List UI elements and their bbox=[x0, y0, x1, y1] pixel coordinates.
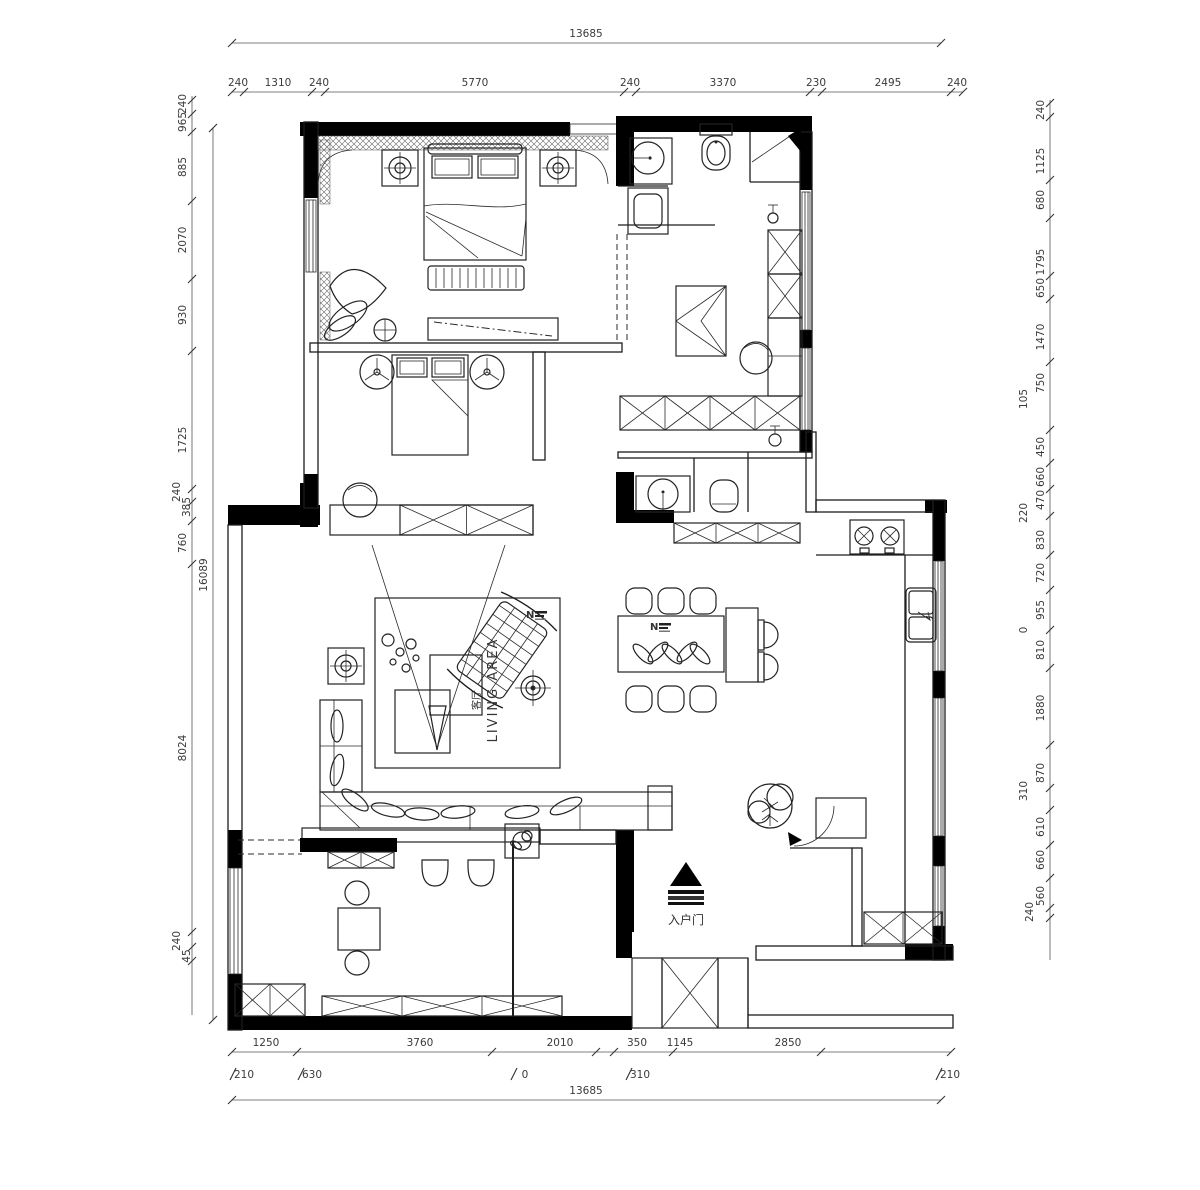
dim-label: 240 bbox=[1035, 100, 1047, 120]
dim-label: 45 bbox=[181, 949, 193, 962]
chair-icon bbox=[758, 652, 778, 682]
entry-hall: 入户门 bbox=[632, 862, 942, 1028]
dim-label: 830 bbox=[1035, 530, 1047, 550]
dining-area: N bbox=[618, 588, 778, 712]
dim-label: 1145 bbox=[667, 1037, 694, 1049]
bathroom-top bbox=[620, 124, 802, 430]
dim-label: 450 bbox=[1035, 437, 1047, 457]
toilet-icon bbox=[710, 480, 738, 512]
rug-icon bbox=[428, 266, 524, 290]
dim-label: 1250 bbox=[253, 1037, 280, 1049]
dim-label: 660 bbox=[1035, 467, 1047, 487]
window-left-upper bbox=[306, 200, 316, 272]
tea-table bbox=[338, 908, 380, 950]
chair-icon bbox=[345, 881, 369, 905]
bed-icon bbox=[424, 144, 526, 260]
stool-icon bbox=[422, 860, 448, 886]
ceiling-fan-icon bbox=[470, 355, 504, 389]
dim-label: 210 bbox=[940, 1069, 960, 1081]
dim-label: 560 bbox=[1035, 886, 1047, 906]
svg-text:N: N bbox=[526, 610, 534, 621]
kitchen-sink-icon bbox=[906, 588, 936, 642]
dim-label: 750 bbox=[1035, 373, 1047, 393]
dim-label: 1725 bbox=[177, 427, 189, 454]
elevator bbox=[632, 958, 748, 1028]
kitchen bbox=[748, 520, 936, 846]
floor-plan-svg: N N LIVIN bbox=[0, 0, 1200, 1190]
fridge-icon bbox=[816, 798, 866, 838]
dim-label: 810 bbox=[1035, 640, 1047, 660]
dim-label: 965 bbox=[177, 112, 189, 132]
dim-label: 1310 bbox=[265, 77, 292, 89]
dim-label: 310 bbox=[1018, 781, 1030, 801]
dim-label: 240 bbox=[309, 77, 329, 89]
stool-icon bbox=[468, 860, 494, 886]
dim-label: 3370 bbox=[710, 77, 737, 89]
dim-label: 870 bbox=[1035, 763, 1047, 783]
entry-door-label: 入户门 bbox=[668, 912, 704, 927]
dim-label: 610 bbox=[1035, 817, 1047, 837]
entry-door-icon bbox=[668, 862, 704, 905]
living-area-label-cn: 客厅 bbox=[470, 690, 483, 710]
dim-label: 1125 bbox=[1035, 148, 1047, 175]
dim-label: 105 bbox=[1018, 389, 1030, 409]
washing-machine-icon bbox=[628, 188, 668, 234]
chair-icon bbox=[345, 951, 369, 975]
dim-label: 240 bbox=[1024, 902, 1036, 922]
dim-label: 3760 bbox=[407, 1037, 434, 1049]
chair-icon bbox=[626, 588, 652, 614]
walls bbox=[228, 116, 953, 1030]
downlight-icon bbox=[382, 150, 418, 186]
dim-label: 5770 bbox=[462, 77, 489, 89]
dim-label: 885 bbox=[177, 157, 189, 177]
dim-label: 16089 bbox=[198, 558, 210, 591]
floor-plan-canvas: N N LIVIN bbox=[0, 0, 1200, 1190]
dim-label: 310 bbox=[630, 1069, 650, 1081]
sink-icon bbox=[630, 138, 672, 184]
downlight-icon bbox=[328, 648, 364, 684]
dim-label: 680 bbox=[1035, 190, 1047, 210]
dim-label: 210 bbox=[234, 1069, 254, 1081]
brand-logo: N bbox=[650, 622, 671, 633]
chair-icon bbox=[758, 620, 778, 650]
dim-label: 13685 bbox=[569, 28, 602, 40]
shower-icon bbox=[750, 128, 801, 182]
dim-label: 1795 bbox=[1035, 249, 1047, 276]
dim-label: 2070 bbox=[177, 227, 189, 254]
dim-label: 1880 bbox=[1035, 695, 1047, 722]
dim-label: 8024 bbox=[177, 734, 189, 761]
dim-label: 230 bbox=[806, 77, 826, 89]
chaise-icon bbox=[445, 589, 559, 711]
dim-label: 13685 bbox=[569, 1085, 602, 1097]
dim-label: 0 bbox=[1018, 627, 1030, 634]
dim-label: 220 bbox=[1018, 503, 1030, 523]
dim-label: 350 bbox=[627, 1037, 647, 1049]
rug-dots bbox=[382, 634, 419, 672]
dim-label: 760 bbox=[177, 533, 189, 553]
dim-label: 240 bbox=[177, 94, 189, 114]
dim-label: 720 bbox=[1035, 563, 1047, 583]
wardrobe-cabinet bbox=[330, 483, 533, 535]
dim-label: 930 bbox=[177, 305, 189, 325]
window-right-upper bbox=[802, 192, 810, 330]
coffee-table bbox=[395, 690, 450, 753]
bathroom-2 bbox=[636, 426, 800, 543]
desk-icon bbox=[676, 286, 726, 356]
dim-label: 955 bbox=[1035, 600, 1047, 620]
chair-icon bbox=[658, 588, 684, 614]
dim-label: 240 bbox=[620, 77, 640, 89]
chair-icon bbox=[740, 342, 772, 374]
side-table-plant bbox=[505, 824, 539, 858]
dining-island bbox=[726, 608, 758, 682]
dim-label: 660 bbox=[1035, 850, 1047, 870]
dim-label: 650 bbox=[1035, 278, 1047, 298]
dim-label: 2850 bbox=[775, 1037, 802, 1049]
interior-walls bbox=[238, 186, 933, 1016]
brand-logo: N bbox=[526, 610, 547, 621]
living-room: N LIVING AREA 客厅 bbox=[320, 545, 672, 858]
dim-label: 630 bbox=[302, 1069, 322, 1081]
window-kitchen-2 bbox=[935, 698, 943, 836]
chair-icon bbox=[658, 686, 684, 712]
dim-label: 0 bbox=[522, 1069, 529, 1081]
master-bedroom bbox=[318, 136, 608, 345]
chair-icon bbox=[690, 686, 716, 712]
table-decor-leaves bbox=[630, 639, 712, 666]
stove-icon bbox=[850, 520, 904, 554]
pendant-light-icon bbox=[769, 426, 781, 446]
dim-label: 470 bbox=[1035, 490, 1047, 510]
dim-label: 1470 bbox=[1035, 324, 1047, 351]
compass-target-icon bbox=[515, 670, 551, 706]
dim-label: 240 bbox=[947, 77, 967, 89]
living-rug bbox=[375, 598, 560, 768]
dim-label: 385 bbox=[181, 497, 193, 517]
bench-icon bbox=[428, 318, 558, 340]
dim-label: 240 bbox=[228, 77, 248, 89]
living-area-label: LIVING AREA bbox=[486, 638, 501, 743]
door-swing-icon bbox=[788, 806, 834, 846]
window-left-lower bbox=[230, 868, 242, 974]
svg-text:N: N bbox=[650, 622, 658, 633]
chair-icon bbox=[690, 588, 716, 614]
bed-icon bbox=[392, 355, 468, 455]
second-bedroom bbox=[330, 355, 533, 535]
window-right-mid bbox=[802, 348, 810, 430]
dim-label: 240 bbox=[171, 931, 183, 951]
closet-column bbox=[768, 230, 802, 396]
downlight-icon bbox=[540, 150, 576, 186]
dim-label: 2495 bbox=[875, 77, 902, 89]
exterior-thin-walls bbox=[228, 122, 953, 1030]
pendant-light-icon bbox=[768, 205, 778, 223]
chair-icon bbox=[626, 686, 652, 712]
dim-label: 2010 bbox=[547, 1037, 574, 1049]
ceiling-fan-icon bbox=[360, 355, 394, 389]
lounge-chair-icon bbox=[321, 269, 396, 344]
plant-tree-icon bbox=[748, 784, 793, 828]
